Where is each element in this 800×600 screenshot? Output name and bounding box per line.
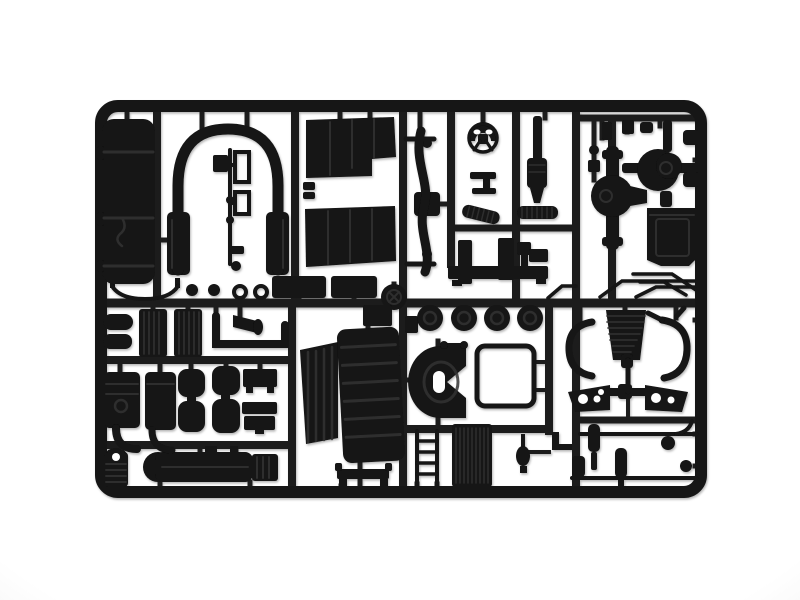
arm-hole [578,394,588,404]
steering-wheel-cutout [474,130,481,135]
arm-hole [668,397,675,404]
hose-ribs-b [522,207,552,218]
sprue-photo: Black injection-molded plastic model kit… [0,0,800,600]
chassis-bracket-2 [242,402,277,434]
fifth-wheel-slot [433,371,445,393]
arm-hole [594,396,601,403]
tie-rod-eye [598,389,604,395]
arm-hole [651,393,661,403]
fuel-tank [97,119,155,284]
step-boxes [272,276,377,298]
steering-wheel-cutout [486,130,493,135]
sprue-photo-svg: Black injection-molded plastic model kit… [0,0,800,600]
engine-cylinder-2 [145,372,176,430]
air-filter-hoop-hole [112,453,120,461]
